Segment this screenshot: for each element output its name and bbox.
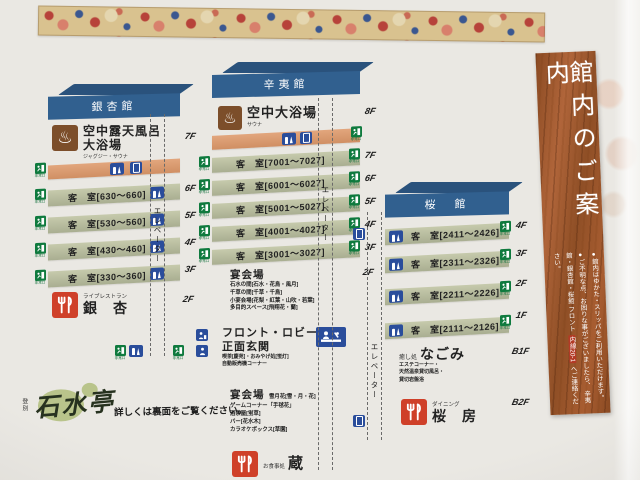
floor-label: 4F [184, 237, 197, 247]
floor-title: 空中大浴場 [247, 106, 317, 121]
vending-machine-icon [353, 228, 365, 240]
emergency-exit-icon: 非常口 [348, 148, 360, 164]
brand-note: 詳しくは裏面をご覧ください。 [114, 402, 247, 418]
floor-label: B1F [511, 346, 530, 356]
floor-subtitle: サウナ [247, 121, 317, 128]
emergency-exit-icon: 非常口 [348, 171, 360, 187]
rooms-label: 客 室[2211〜2226] [411, 285, 500, 303]
floor-8f: ♨ 空中大浴場 サウナ 非常口 8F [212, 106, 360, 146]
emergency-exit-icon: 非常口 [499, 315, 511, 331]
elevator-shaft: エレベーター [367, 212, 382, 440]
roof: 桜 館 [385, 182, 509, 216]
rooms-label: 客 室[2111〜2126] [411, 319, 499, 337]
rooms-label: 客 室[630〜660] [68, 186, 146, 203]
rooms-label: 客 室[7001〜7027] [236, 153, 325, 171]
reception-icon [196, 329, 208, 341]
floor-b2f: ダイニング 桜 房 非常口 B2F [385, 399, 509, 432]
elevator-shaft: エレベーター [150, 114, 165, 356]
floor-label: 8F [364, 106, 377, 116]
building-name: 辛夷館 [212, 71, 360, 98]
building-name: 桜 館 [385, 191, 509, 217]
floor-3f: 非常口 客 室[3001〜3027] 非常口 3F [212, 246, 360, 261]
floor-lines: 喫茶[慶苑]・おみやげ処[蛍灯] 自動販売機コーナー [222, 354, 360, 369]
emergency-exit-icon: 非常口 [198, 202, 210, 218]
restaurant-icon [52, 292, 78, 318]
rooms-label: 客 室[4001〜4027] [236, 222, 325, 240]
floor-7f: 非常口 客 室[7001〜7027] 非常口 7F [212, 154, 360, 169]
floor-2f: 客 室[2211〜2226] 非常口 2F [385, 286, 509, 302]
restroom-icon [389, 290, 403, 303]
paper-edge [614, 0, 640, 480]
floor-label: 6F [184, 183, 197, 193]
restroom-icon [110, 162, 124, 175]
roof: 銀杏館 [48, 84, 180, 118]
floor-label: 5F [184, 210, 197, 220]
vending-machine-icon [353, 415, 365, 427]
rooms-label: 客 室[2311〜2326] [411, 253, 500, 271]
brand-name: 石水亭 [33, 382, 117, 425]
floor-subtitle: 癒し処 [399, 352, 417, 361]
floor-label: 2F [182, 294, 195, 304]
floor-title: なごみ [420, 346, 465, 362]
emergency-exit-icon: 非常口 [34, 188, 46, 204]
emergency-exit-icon: 非常口 [34, 242, 46, 258]
rooms-label: 客 室[5001〜5027] [236, 199, 325, 217]
floor-label: 5F [364, 196, 377, 206]
floor-guide-photo: 銀杏館 エレベーター ♨ 空中露天風呂 大浴場 ジャグジー・サウナ 非 [0, 0, 640, 480]
floor-1f: 客 室[2111〜2126] 非常口 1F [385, 320, 509, 336]
emergency-exit-icon: 非常口 [34, 162, 46, 178]
floor-title: 銀 杏 [83, 300, 128, 316]
elevator-shaft: エレベーター [318, 98, 333, 470]
floor-label: 4F [515, 220, 528, 230]
floor-lines: エステコーナー・ 天然温泉貸切風呂・ 貸切岩盤浴 [399, 362, 509, 384]
floor-label: 1F [515, 310, 528, 320]
elevator-label: エレベーター [152, 207, 163, 264]
floor-subtitle: ライブレストラン [83, 292, 128, 300]
brand-logo: 登別 石水亭 詳しくは裏面をご覧ください。 [8, 380, 269, 435]
elevator-label: エレベーター [369, 343, 380, 400]
floor-subtitle: お食事処 [263, 462, 285, 470]
emergency-exit-icon: 非常口 [348, 240, 360, 256]
onsen-icon: ♨ [52, 125, 78, 151]
floor-label: B2F [511, 397, 530, 407]
information-icon [196, 345, 208, 357]
brand-area-label: 登別 [20, 398, 29, 412]
restroom-icon [389, 258, 403, 271]
floor-label: 6F [364, 173, 377, 183]
emergency-exit-icon: 非常口 [34, 215, 46, 231]
elevator-label: エレベーター [320, 186, 331, 243]
building-sakurakan: 桜 館 エレベーター 客 室[2411〜2426] 非常口 4F 客 室[231… [385, 182, 509, 432]
vending-machine-icon [130, 161, 142, 174]
building-ginkyokan: 銀杏館 エレベーター ♨ 空中露天風呂 大浴場 ジャグジー・サウナ 非 [48, 84, 180, 360]
floor-lines: 石水の間[石水・花鳥・風月] 千草の間[千草・千鳥] 小宴会場[花梨・紅葉・山吹… [230, 282, 360, 313]
floor-label: 3F [515, 248, 528, 258]
emergency-exit-icon: 非常口 [198, 225, 210, 241]
emergency-exit-icon: 非常口 [198, 156, 210, 172]
restaurant-icon [401, 399, 427, 425]
floor-b1f: 癒し処 なごみ エステコーナー・ 天然温泉貸切風呂・ 貸切岩盤浴 非常口 B1F [385, 346, 509, 389]
emergency-exit-icon: 非常口 [198, 179, 210, 195]
floor-label: 2F [515, 278, 528, 288]
floor-subtitle: ダイニング [432, 400, 477, 408]
floor-title-note: 雪月花[雪・月・花] [269, 394, 316, 400]
emergency-exit-icon: 非常口 [499, 249, 511, 265]
rooms-label: 客 室[3001〜3027] [236, 245, 325, 263]
emergency-exit-icon: 非常口 [499, 281, 511, 297]
floor-3f: 客 室[2311〜2326] 非常口 3F [385, 254, 509, 270]
floor-title: 桜 房 [432, 408, 477, 424]
rooms-label: 客 室[430〜460] [68, 240, 146, 257]
emergency-exit-icon: 非常口 [34, 269, 46, 285]
restroom-icon [129, 345, 143, 357]
banner-note-1: ●館内はゆかた・スリッパをご利用いただけます。 [590, 251, 603, 401]
floor-2f: 宴会場 石水の間[石水・花鳥・風月] 千草の間[千草・千鳥] 小宴会場[花梨・紅… [212, 267, 360, 319]
rooms-label: 客 室[6001〜6027] [236, 176, 325, 194]
floor-5f: 非常口 客 室[5001〜5027] 非常口 5F [212, 200, 360, 215]
floor-label: 7F [364, 150, 377, 160]
emergency-exit-icon: 非常口 [350, 126, 362, 142]
restaurant-icon [232, 451, 258, 477]
floor-label: 7F [184, 131, 197, 141]
roof: 辛夷館 [212, 62, 360, 96]
floor-label: 3F [184, 264, 197, 274]
floor-b2f: お食事処 蔵 非常口 [212, 451, 360, 480]
rooms-label: 客 室[2411〜2426] [411, 225, 500, 243]
floor-4f: 客 室[2411〜2426] 非常口 4F [385, 226, 509, 242]
floor-title: 蔵 [288, 455, 304, 472]
vending-machine-icon [300, 132, 312, 145]
rooms-label: 客 室[530〜560] [68, 213, 146, 230]
emergency-exit-icon: 非常口 [198, 308, 210, 324]
floor-6f: 非常口 客 室[6001〜6027] 非常口 6F [212, 177, 360, 192]
onsen-icon: ♨ [218, 106, 242, 130]
emergency-exit-icon: 非常口 [198, 248, 210, 264]
restroom-icon [389, 230, 403, 243]
floor-1f: フロント・ロビー・ 正面玄関 喫茶[慶苑]・おみやげ処[蛍灯] 自動販売機コーナ… [212, 327, 360, 377]
washi-tape-decoration [38, 5, 545, 42]
emergency-exit-icon: 非常口 [172, 345, 184, 360]
floor-4f: 非常口 客 室[4001〜4027] 非常口 4F [212, 223, 360, 238]
emergency-exit-icon: 非常口 [499, 221, 511, 237]
rooms-label: 客 室[330〜360] [68, 267, 146, 284]
banner-title: 館内のご案内 [542, 59, 598, 245]
floor-title: 宴会場 [230, 267, 360, 282]
banner-notes: ●館内はゆかた・スリッパをご利用いただけます。 ●ご不明な点、お困りな事がござい… [548, 251, 607, 409]
emergency-exit-icon: 非常口 [348, 194, 360, 210]
emergency-exit-icon: 非常口 [114, 345, 126, 360]
extension-number-box: 内線20-1 [568, 335, 576, 363]
restroom-icon [282, 132, 296, 145]
restroom-icon [389, 324, 403, 337]
info-banner: 館内のご案内 ●館内はゆかた・スリッパをご利用いただけます。 ●ご不明な点、お困… [535, 51, 610, 415]
